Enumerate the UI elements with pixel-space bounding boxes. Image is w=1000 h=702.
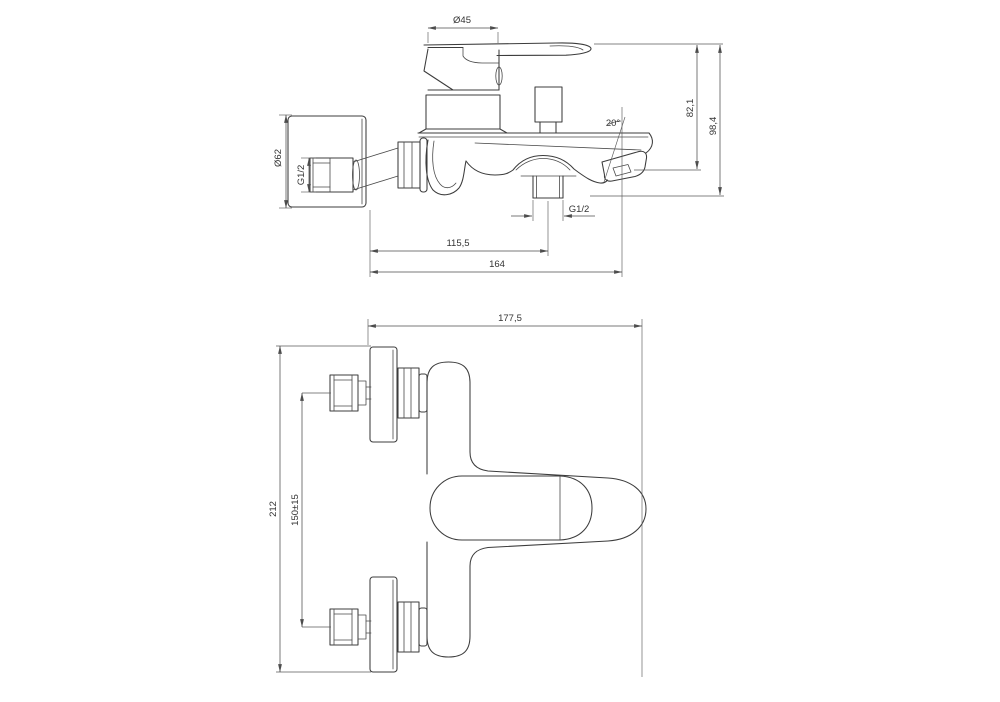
dim-label-spout-reach: 164 xyxy=(489,259,505,270)
dim-label-shower-offset: 115,5 xyxy=(446,238,469,249)
dim-label-spout-height: 82,1 xyxy=(685,99,696,118)
dim-label-inlet-thread: G1/2 xyxy=(296,165,307,186)
dim-label-spout-angle: 20° xyxy=(606,118,621,129)
technical-drawing: Ø45 82,1 98,4 20° Ø62 G1/2 G1/2 115, xyxy=(0,0,1000,702)
dim-label-overall-width: 177,5 xyxy=(498,313,522,324)
dim-label-overall-span: 212 xyxy=(268,501,279,517)
dim-label-handle-diameter: Ø45 xyxy=(453,15,471,26)
dim-label-overall-height: 98,4 xyxy=(708,117,719,136)
dim-label-plate-diameter: Ø62 xyxy=(273,149,284,167)
dim-label-inlet-spacing: 150±15 xyxy=(290,494,301,526)
drawing-canvas: Ø45 82,1 98,4 20° Ø62 G1/2 G1/2 115, xyxy=(0,0,1000,702)
dim-label-shower-thread: G1/2 xyxy=(569,204,590,215)
